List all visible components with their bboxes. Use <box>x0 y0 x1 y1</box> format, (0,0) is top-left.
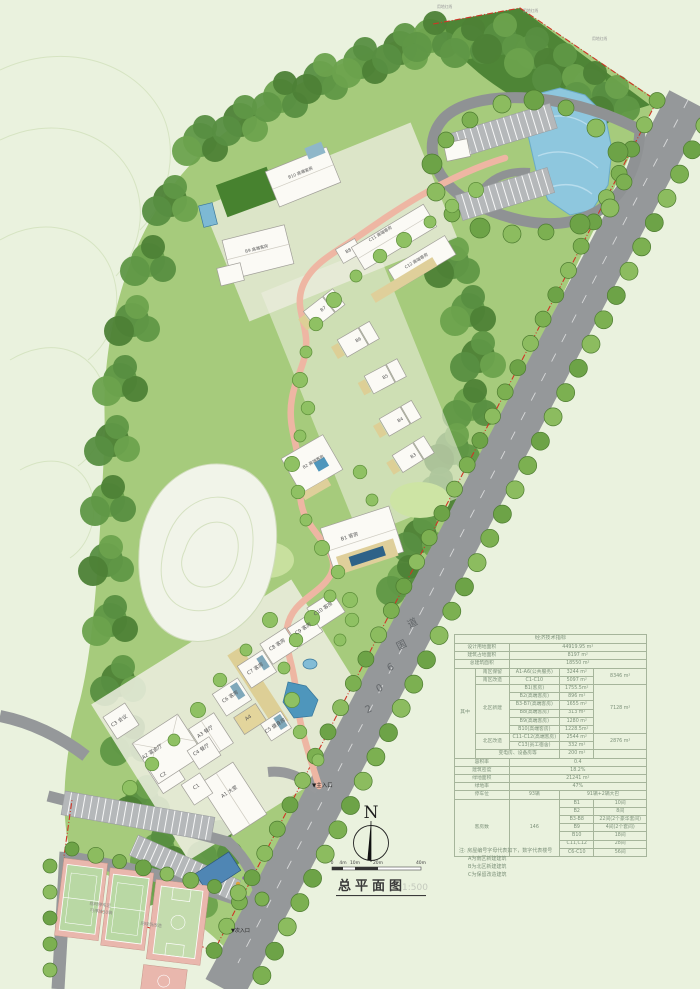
table-cell: B9(高端客房) <box>509 717 560 725</box>
table-cell: 总建筑面积 <box>455 660 510 668</box>
note-line: 注: 房屋编号字母代表如下，数字代表楼号 <box>459 847 552 855</box>
table-cell: 332 m² <box>560 742 594 750</box>
boundary-label-3: 用地红线 <box>592 36 607 41</box>
table-cell: 56间 <box>594 848 647 856</box>
table-cell: 南区改造 <box>476 676 509 684</box>
page-title: 总平面图 <box>338 878 406 894</box>
kids-pool <box>303 659 317 669</box>
table-cell: C13(员工宿舍) <box>509 742 560 750</box>
table-cell: 其中 <box>455 668 476 758</box>
note-line: A为南区新建建筑 <box>468 855 552 863</box>
table-cell: 北区新建 <box>476 684 509 733</box>
table-cell: 91辆+2辆大巴 <box>560 791 647 799</box>
table-cell: 0.4 <box>509 758 646 766</box>
table-cell: 1228.5m² <box>560 725 594 733</box>
table-cell: 容积率 <box>455 758 510 766</box>
table-cell: 8间 <box>594 807 647 815</box>
table-cell: 10间 <box>594 799 647 807</box>
table-cell: C6-C10 <box>560 848 594 856</box>
site-plan-drawing: A1 大堂 A2 宴会厅 A3 餐厅 A4 C1 C2 C3 会议 C4 餐厅 … <box>0 0 700 989</box>
table-cell: 变电房、设备房等 <box>476 750 560 758</box>
svg-text:20m: 20m <box>373 860 383 866</box>
table-cell: 1280 m² <box>560 717 594 725</box>
table-cell: 2876 m² <box>594 734 647 750</box>
table-cell: 设计用地面积 <box>455 644 510 652</box>
table-cell: 绿地面积 <box>455 775 510 783</box>
table-cell: 896 m² <box>560 693 594 701</box>
table-cell: B3-B8 <box>560 815 594 823</box>
table-header: 经济技术指标 <box>455 635 647 644</box>
table-cell: 停车位 <box>455 791 510 799</box>
table-cell: 5097 m² <box>560 676 594 684</box>
title-scale: 1:500 <box>402 883 428 893</box>
table-cell: 建筑占地面积 <box>455 652 510 660</box>
note-line: B为北区新建建筑 <box>468 863 552 871</box>
table-cell: B8(高端客房) <box>509 709 560 717</box>
secondary-entrance-label: ▼次入口 <box>231 927 250 934</box>
table-cell: 18550 m² <box>509 660 646 668</box>
table-cell: 南区保留 <box>476 668 509 676</box>
table-cell: 建筑密度 <box>455 766 510 774</box>
table-cell: 313 m² <box>560 709 594 717</box>
boundary-label-2: 用地红线 <box>523 8 538 13</box>
table-cell: 18.2% <box>509 766 646 774</box>
svg-text:40m: 40m <box>416 860 426 866</box>
table-cell: 北区改造 <box>476 734 509 750</box>
table-cell: 21241 m² <box>509 775 646 783</box>
table-cell: 18间 <box>594 832 647 840</box>
table-cell: B10 <box>560 832 594 840</box>
table-cell: B3-B7(高端客房) <box>509 701 560 709</box>
table-cell: 47% <box>509 783 646 791</box>
table-cell: 44919.95 m² <box>509 644 646 652</box>
table-cell: B10(高端客房) <box>509 725 560 733</box>
economic-table: 经济技术指标 设计用地面积44919.95 m² 建筑占地面积8197 m² 总… <box>454 634 647 857</box>
svg-text:N: N <box>364 803 379 823</box>
table-cell: 4间(2个套间) <box>594 824 647 832</box>
boundary-label-1: 用地红线 <box>437 4 452 9</box>
table-cell: B1(客房) <box>509 684 560 692</box>
table-cell: 22间(2个豪华套间) <box>594 815 647 823</box>
table-cell: 1755.5m² <box>560 684 594 692</box>
table-cell: B2 <box>560 807 594 815</box>
table-cell: 8346 m² <box>594 668 647 684</box>
table-cell: 1655 m² <box>560 701 594 709</box>
svg-text:0: 0 <box>331 860 334 866</box>
table-cell: C11-C12(高端客房) <box>509 734 560 742</box>
table-cell <box>594 750 647 758</box>
table-cell: A1-A6(公共服务) <box>509 668 560 676</box>
table-cell: C11,C12 <box>560 840 594 848</box>
table-cell: 28间 <box>594 840 647 848</box>
table-note: 注: 房屋编号字母代表如下，数字代表楼号 A为南区新建建筑 B为北区新建建筑 C… <box>459 847 552 879</box>
main-entrance-label: ▼主入口 <box>312 781 333 789</box>
table-cell: 绿地率 <box>455 783 510 791</box>
table-cell: 8197 m² <box>509 652 646 660</box>
table-cell: B2(高端客房) <box>509 693 560 701</box>
table-cell: B1 <box>560 799 594 807</box>
table-cell: 2544 m² <box>560 734 594 742</box>
table-cell: 7128 m² <box>594 684 647 733</box>
table-cell: 93辆 <box>509 791 560 799</box>
table-cell: B9 <box>560 824 594 832</box>
svg-text:4m: 4m <box>339 860 346 866</box>
table-cell: 3244 m² <box>560 668 594 676</box>
table-cell: 200 m² <box>560 750 594 758</box>
table-cell: C1-C10 <box>509 676 560 684</box>
svg-text:10m: 10m <box>350 860 360 866</box>
note-line: C为保留改造建筑 <box>468 871 552 879</box>
